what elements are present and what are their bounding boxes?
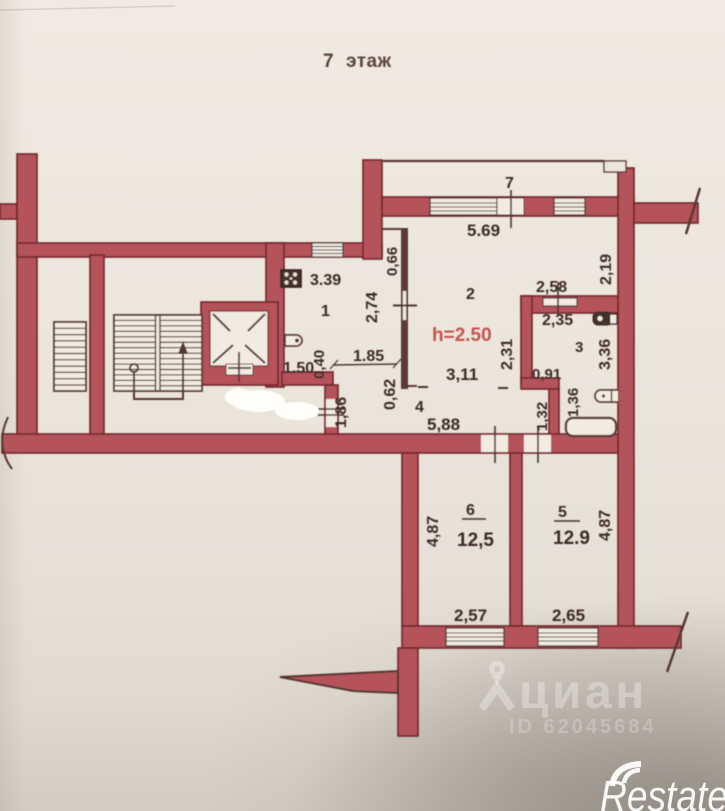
svg-text:4,87: 4,87 (597, 510, 614, 541)
svg-text:1,32: 1,32 (534, 402, 551, 431)
svg-text:5.69: 5.69 (467, 221, 500, 240)
svg-text:4,87: 4,87 (425, 516, 442, 547)
svg-text:1.50: 1.50 (283, 360, 314, 377)
svg-text:3,11: 3,11 (446, 365, 478, 384)
svg-text:0,91: 0,91 (532, 366, 561, 383)
svg-text:2: 2 (466, 286, 475, 303)
svg-text:0,40: 0,40 (311, 350, 328, 379)
svg-text:7: 7 (323, 51, 334, 72)
svg-text:циан: циан (519, 666, 648, 719)
svg-text:1,86: 1,86 (333, 397, 350, 428)
svg-text:3: 3 (575, 339, 583, 356)
svg-text:1.85: 1.85 (353, 348, 384, 365)
svg-text:2,65: 2,65 (552, 606, 585, 625)
svg-text:Restate: Restate (600, 772, 725, 811)
svg-text:2,57: 2,57 (454, 606, 487, 625)
svg-text:ID 62045684: ID 62045684 (509, 716, 657, 738)
svg-text:2,74: 2,74 (364, 292, 381, 323)
svg-text:5,88: 5,88 (427, 415, 460, 434)
svg-text:7: 7 (505, 175, 514, 192)
svg-text:h=2.50: h=2.50 (432, 325, 492, 346)
svg-text:2,58: 2,58 (536, 279, 567, 296)
svg-text:4: 4 (415, 399, 424, 416)
svg-text:3.39: 3.39 (310, 272, 341, 289)
svg-text:2,31: 2,31 (499, 339, 516, 370)
svg-text:6: 6 (466, 502, 475, 519)
svg-text:1,36: 1,36 (565, 388, 582, 417)
svg-text:2,19: 2,19 (598, 254, 615, 285)
svg-text:12,5: 12,5 (457, 530, 494, 551)
svg-text:3,36: 3,36 (597, 339, 614, 370)
svg-text:12.9: 12.9 (553, 528, 590, 549)
svg-text:1: 1 (321, 303, 330, 320)
svg-text:этаж: этаж (346, 51, 392, 72)
svg-text:5: 5 (558, 504, 567, 521)
svg-text:0,66: 0,66 (384, 247, 401, 276)
svg-text:0,62: 0,62 (382, 379, 399, 410)
svg-text:2,35: 2,35 (542, 312, 573, 329)
